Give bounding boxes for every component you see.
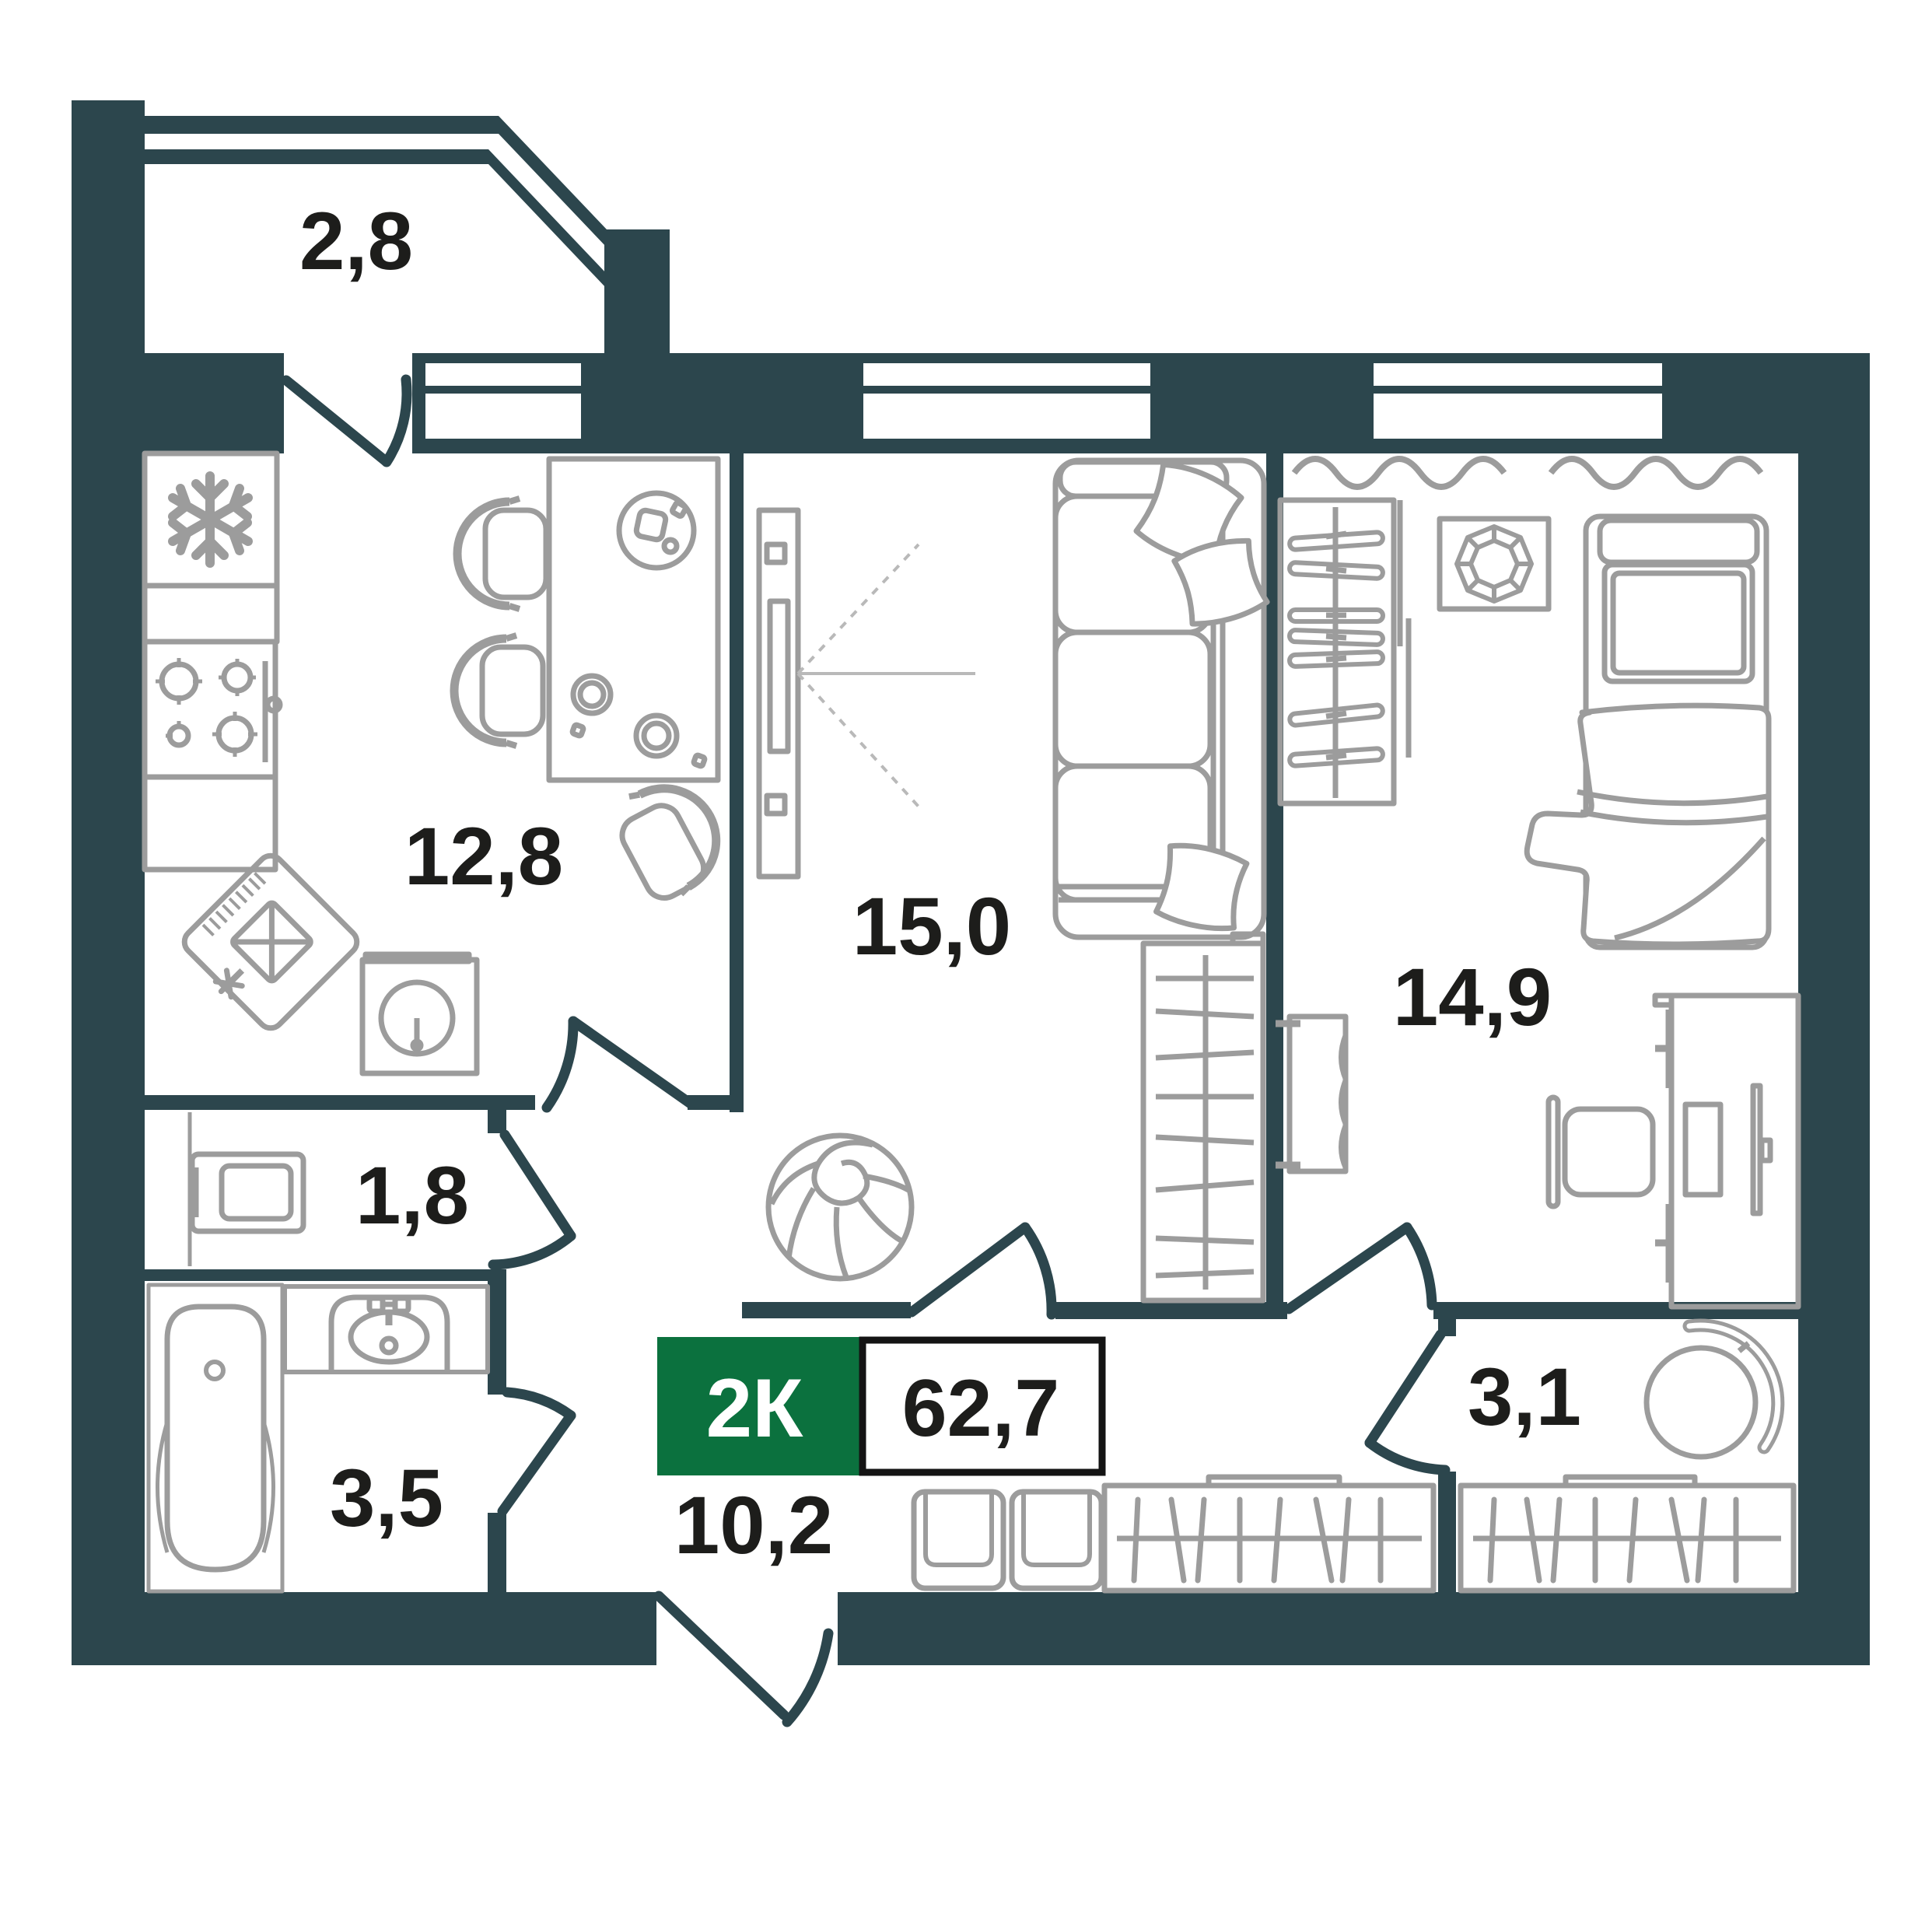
svg-text:1,8: 1,8 bbox=[355, 1150, 469, 1241]
svg-text:12,8: 12,8 bbox=[404, 811, 563, 902]
svg-text:14,9: 14,9 bbox=[1393, 952, 1552, 1043]
svg-text:2К: 2К bbox=[706, 1361, 804, 1454]
svg-text:3,5: 3,5 bbox=[330, 1453, 443, 1544]
svg-text:10,2: 10,2 bbox=[674, 1480, 833, 1571]
svg-text:62,7: 62,7 bbox=[902, 1363, 1059, 1454]
svg-text:2,8: 2,8 bbox=[299, 196, 413, 287]
svg-text:15,0: 15,0 bbox=[852, 881, 1011, 972]
svg-text:3,1: 3,1 bbox=[1468, 1352, 1581, 1443]
